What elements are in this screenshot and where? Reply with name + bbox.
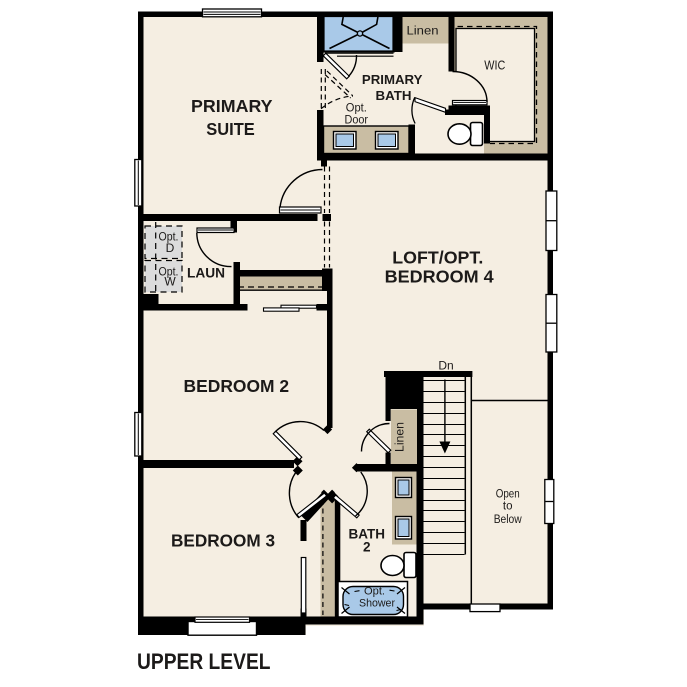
svg-text:D: D — [166, 241, 175, 255]
svg-text:Open: Open — [496, 488, 520, 500]
svg-text:Dn: Dn — [438, 359, 453, 373]
svg-text:to: to — [503, 501, 513, 513]
svg-text:WIC: WIC — [484, 58, 505, 72]
svg-text:Door: Door — [345, 115, 369, 127]
svg-text:PRIMARY: PRIMARY — [191, 96, 273, 116]
svg-text:Below: Below — [494, 514, 523, 526]
svg-text:BEDROOM 2: BEDROOM 2 — [184, 376, 290, 396]
svg-text:UPPER LEVEL: UPPER LEVEL — [137, 649, 271, 674]
svg-text:Linen: Linen — [393, 422, 407, 452]
svg-text:BEDROOM 4: BEDROOM 4 — [385, 267, 494, 287]
svg-text:PRIMARY: PRIMARY — [362, 72, 423, 87]
svg-text:2: 2 — [363, 540, 371, 555]
svg-text:BATH: BATH — [376, 88, 412, 103]
svg-text:SUITE: SUITE — [206, 119, 255, 139]
svg-text:Shower: Shower — [359, 597, 395, 609]
svg-text:LAUN: LAUN — [187, 266, 225, 281]
svg-text:W: W — [164, 275, 176, 289]
svg-text:Opt.: Opt. — [364, 586, 385, 598]
svg-text:Opt.: Opt. — [346, 102, 367, 114]
svg-text:LOFT/OPT.: LOFT/OPT. — [392, 247, 483, 267]
svg-text:Linen: Linen — [407, 24, 439, 38]
svg-text:BEDROOM 3: BEDROOM 3 — [171, 531, 275, 551]
